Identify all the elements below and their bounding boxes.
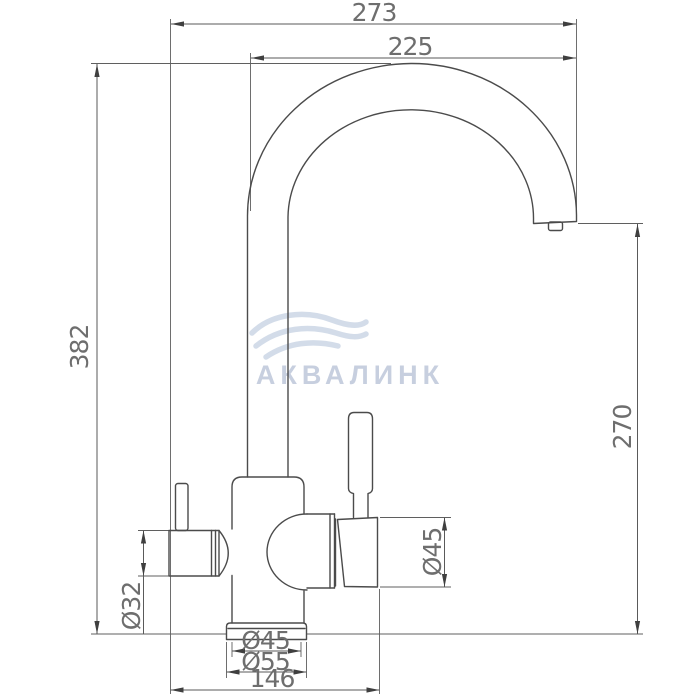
arrowhead-bottom — [635, 621, 640, 634]
arrowhead-right — [288, 648, 301, 653]
arrowhead-left — [251, 55, 264, 60]
body-top-shoulder — [232, 477, 304, 529]
arrowhead-right — [294, 669, 307, 674]
dimension-right-handle-diameter: Ø45 — [418, 518, 447, 588]
dimension-spout-reach: 225 — [251, 32, 576, 61]
right-connector-dome — [267, 514, 307, 590]
dimension-label-146: 146 — [250, 664, 295, 693]
faucet-outline — [169, 63, 577, 639]
arrowhead-bottom — [141, 563, 146, 576]
dimension-label-273: 273 — [352, 0, 397, 27]
dimension-total-height: 382 — [65, 64, 100, 634]
dimension-label-d45-right: Ø45 — [418, 528, 447, 577]
dimension-label-270: 270 — [608, 405, 637, 450]
dimension-label-d32: Ø32 — [117, 582, 146, 631]
spout-and-neck — [247, 63, 576, 477]
right-handle-lever — [349, 413, 373, 518]
right-handle-body — [338, 518, 378, 588]
arrowhead-right — [563, 21, 576, 26]
dimension-label-225: 225 — [388, 32, 433, 61]
arrowhead-right — [563, 55, 576, 60]
technical-drawing-page: АКВАЛИНК — [0, 0, 700, 700]
arrowhead-left — [171, 687, 184, 692]
dimensions: 273 225 382 270 Ø32 — [65, 0, 640, 693]
extension-lines — [91, 19, 643, 694]
watermark: АКВАЛИНК — [252, 314, 444, 390]
dimension-left-handle-diameter: Ø32 — [117, 531, 146, 635]
arrowhead-right — [367, 687, 380, 692]
arrowhead-top — [94, 64, 99, 77]
dimension-spout-outlet-height: 270 — [608, 224, 640, 634]
arrowhead-top — [635, 224, 640, 237]
arrowhead-top — [141, 531, 146, 544]
dimension-handle-span: 146 — [171, 664, 380, 693]
arrowhead-bottom — [94, 621, 99, 634]
left-handle-lever — [176, 484, 189, 531]
faucet-dimension-drawing: АКВАЛИНК — [0, 0, 700, 700]
dimension-total-width: 273 — [171, 0, 576, 27]
arrowhead-left — [171, 21, 184, 26]
dimension-label-382: 382 — [65, 325, 94, 370]
watermark-brand-text: АКВАЛИНК — [256, 360, 444, 390]
left-handle-connector-dome — [219, 531, 228, 577]
wave-logo-icon — [252, 314, 366, 357]
arrowhead-left — [227, 669, 240, 674]
